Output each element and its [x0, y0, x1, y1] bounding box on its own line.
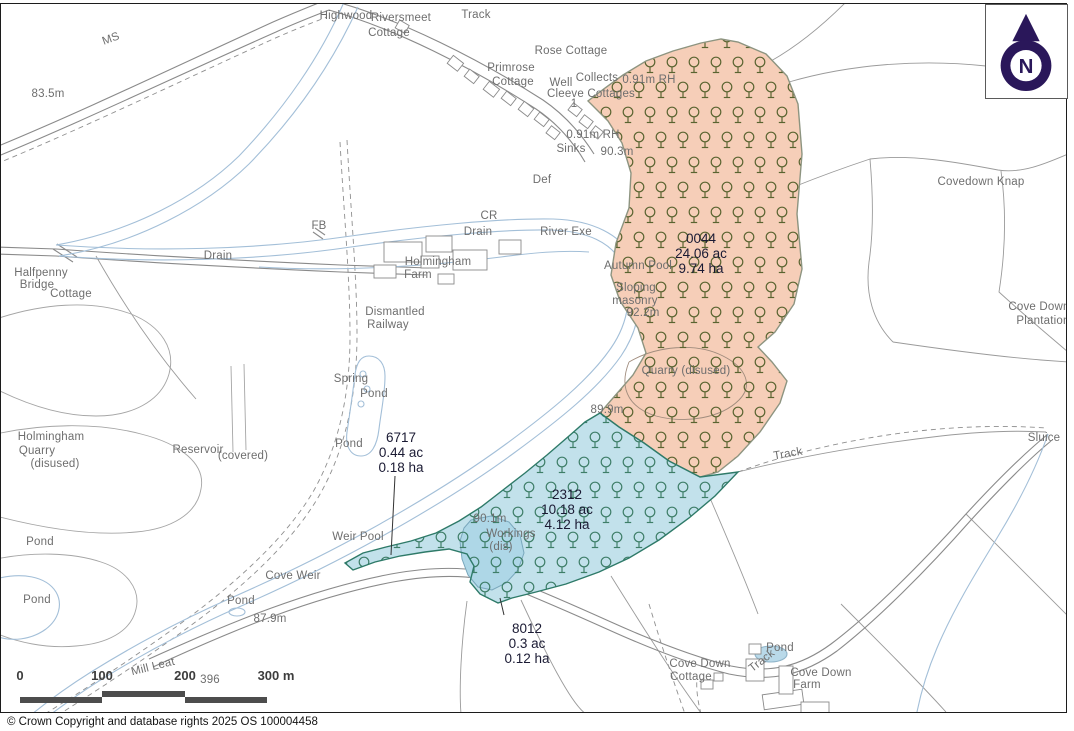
- dismantled-railway: [1, 17, 1046, 713]
- scale-segment-3: [185, 697, 267, 703]
- north-arrow-box: N: [985, 4, 1068, 99]
- scale-tick-200: 200: [174, 668, 196, 683]
- parcel-0044: [588, 39, 802, 477]
- quarry-contours: [1, 305, 246, 647]
- north-letter: N: [1019, 55, 1034, 78]
- copyright-notice: © Crown Copyright and database rights 20…: [7, 716, 318, 728]
- scale-tick-0: 0: [16, 668, 23, 683]
- map-frame: MS83.5mHighwoodRiversmeetCottageTrackRos…: [0, 3, 1067, 713]
- scale-tick-100: 100: [91, 668, 113, 683]
- scale-tick-300: 300 m: [258, 668, 295, 683]
- north-arrow-icon: N: [986, 5, 1067, 98]
- map-canvas: [1, 4, 1067, 713]
- scale-segment-2: [102, 691, 185, 697]
- scale-segment-1: [20, 697, 102, 703]
- map-print-page: { "footer": { "copyright": "© Crown Copy…: [0, 0, 1074, 731]
